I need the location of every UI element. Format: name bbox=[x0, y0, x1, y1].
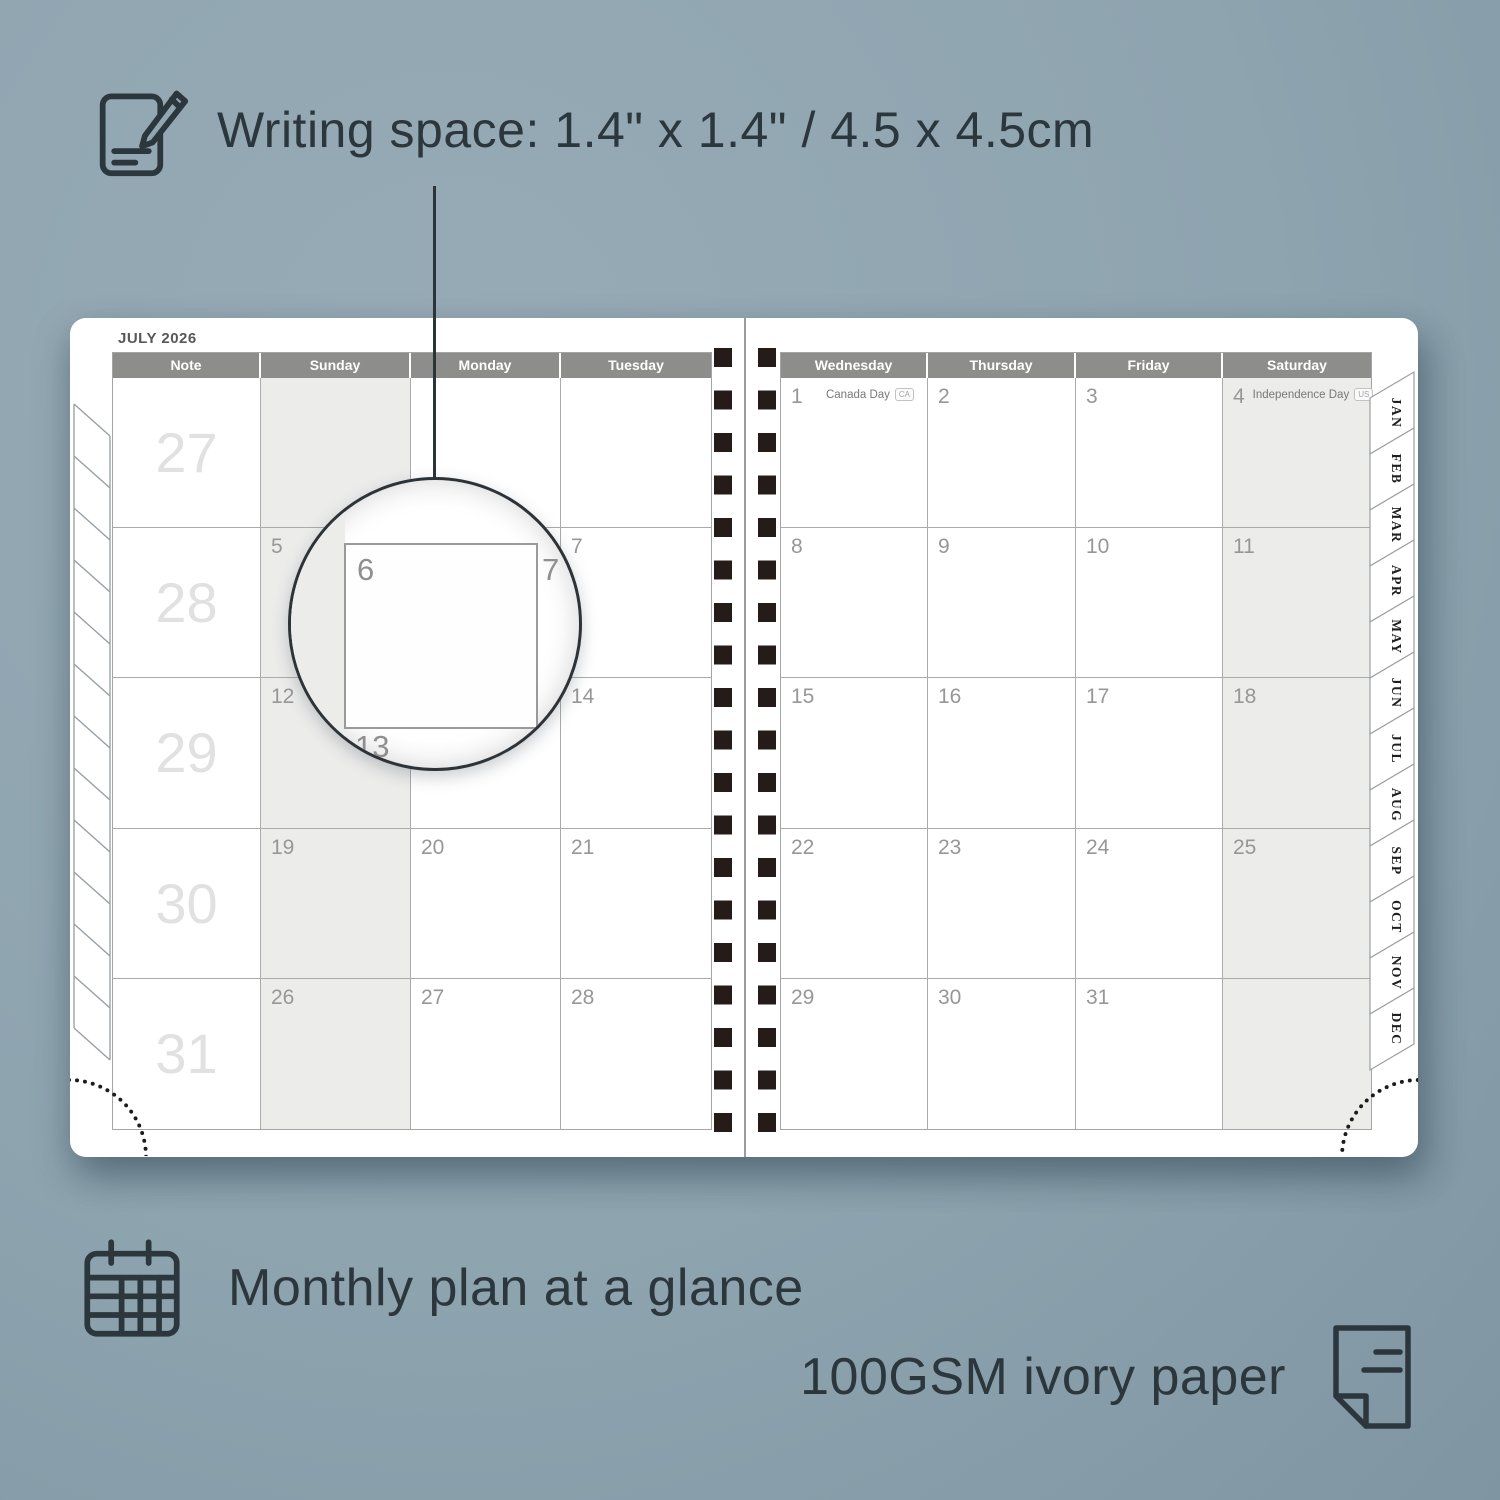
day-cell: 7 bbox=[561, 528, 711, 678]
week-number-cell: 27 bbox=[113, 378, 261, 528]
day-cell: 11 bbox=[1223, 528, 1371, 678]
week-number-cell: 29 bbox=[113, 678, 261, 828]
paper-annotation: 100GSM ivory paper bbox=[800, 1322, 1420, 1432]
tab-apr: APR bbox=[1389, 565, 1404, 597]
binding-holes-right bbox=[758, 348, 776, 1132]
column-header-tuesday: Tuesday bbox=[561, 353, 711, 378]
day-cell bbox=[561, 378, 711, 528]
day-cell: 28 bbox=[561, 979, 711, 1129]
day-cell-canada-day: 1 Canada Day CA bbox=[781, 378, 928, 528]
day-cell: 25 bbox=[1223, 829, 1371, 979]
day-cell: 30 bbox=[928, 979, 1076, 1129]
tab-feb: FEB bbox=[1389, 454, 1404, 485]
tab-aug: AUG bbox=[1389, 788, 1404, 823]
tab-jul: JUL bbox=[1389, 734, 1404, 764]
tab-jun: JUN bbox=[1389, 678, 1404, 709]
day-cell: 27 bbox=[411, 979, 561, 1129]
month-title: JULY 2026 bbox=[118, 330, 197, 347]
day-cell: 9 bbox=[928, 528, 1076, 678]
column-header-wednesday: Wednesday bbox=[781, 353, 928, 378]
tab-mar: MAR bbox=[1389, 507, 1404, 544]
magnified-adjacent-day: 7 bbox=[542, 552, 559, 588]
tab-sep: SEP bbox=[1389, 846, 1404, 875]
monthly-plan-label: Monthly plan at a glance bbox=[228, 1258, 804, 1318]
day-cell: 31 bbox=[1076, 979, 1223, 1129]
column-header-note: Note bbox=[113, 353, 261, 378]
writing-space-magnifier: 6 7 13 bbox=[288, 477, 582, 771]
magnified-weekend-shade bbox=[291, 480, 345, 768]
day-cell: 26 bbox=[261, 979, 411, 1129]
paper-label: 100GSM ivory paper bbox=[800, 1347, 1286, 1407]
left-page-edge-tabs bbox=[68, 396, 114, 1080]
tab-dec: DEC bbox=[1389, 1012, 1404, 1045]
day-cell: 8 bbox=[781, 528, 928, 678]
day-cell: 15 bbox=[781, 678, 928, 828]
tab-oct: OCT bbox=[1389, 900, 1404, 934]
day-cell: 10 bbox=[1076, 528, 1223, 678]
writing-space-annotation: Writing space: 1.4" x 1.4" / 4.5 x 4.5cm bbox=[95, 80, 1094, 180]
corner-stitch-right bbox=[1330, 1076, 1418, 1156]
paper-icon bbox=[1324, 1322, 1420, 1432]
page-seam bbox=[744, 318, 746, 1157]
day-cell: 21 bbox=[561, 829, 711, 979]
monthly-plan-annotation: Monthly plan at a glance bbox=[80, 1236, 804, 1340]
day-cell: 24 bbox=[1076, 829, 1223, 979]
tab-may: MAY bbox=[1389, 619, 1404, 655]
month-tabs: JAN FEB MAR APR MAY JUN JUL AUG SEP OCT … bbox=[1366, 360, 1418, 1080]
corner-stitch-left bbox=[70, 1076, 158, 1156]
day-cell-independence-day: 4 Independence Day US bbox=[1223, 378, 1371, 528]
column-header-sunday: Sunday bbox=[261, 353, 411, 378]
country-badge: CA bbox=[895, 388, 914, 401]
column-header-thursday: Thursday bbox=[928, 353, 1076, 378]
product-image: Writing space: 1.4" x 1.4" / 4.5 x 4.5cm… bbox=[0, 0, 1500, 1500]
tab-nov: NOV bbox=[1389, 956, 1404, 991]
day-cell: 2 bbox=[928, 378, 1076, 528]
day-cell: 20 bbox=[411, 829, 561, 979]
calendar-icon bbox=[80, 1236, 184, 1340]
column-header-friday: Friday bbox=[1076, 353, 1223, 378]
day-cell: 17 bbox=[1076, 678, 1223, 828]
day-cell: 29 bbox=[781, 979, 928, 1129]
binding-holes-left bbox=[714, 348, 732, 1132]
magnified-day-number: 6 bbox=[357, 552, 374, 588]
day-cell: 14 bbox=[561, 678, 711, 828]
column-header-saturday: Saturday bbox=[1223, 353, 1371, 378]
tab-jan: JAN bbox=[1389, 398, 1404, 429]
week-number-cell: 30 bbox=[113, 829, 261, 979]
right-page-grid: Wednesday Thursday Friday Saturday 1 Can… bbox=[780, 352, 1372, 1130]
note-pencil-icon bbox=[95, 80, 191, 180]
day-cell: 18 bbox=[1223, 678, 1371, 828]
holiday-label: Independence Day US bbox=[1259, 388, 1367, 401]
holiday-label: Canada Day CA bbox=[817, 388, 923, 401]
week-number-cell: 28 bbox=[113, 528, 261, 678]
writing-space-label: Writing space: 1.4" x 1.4" / 4.5 x 4.5cm bbox=[217, 101, 1094, 159]
day-cell: 22 bbox=[781, 829, 928, 979]
day-cell: 19 bbox=[261, 829, 411, 979]
day-cell: 3 bbox=[1076, 378, 1223, 528]
day-cell: 16 bbox=[928, 678, 1076, 828]
magnified-below-day: 13 bbox=[355, 729, 389, 765]
day-cell: 23 bbox=[928, 829, 1076, 979]
magnifier-pointer-line bbox=[433, 186, 436, 479]
